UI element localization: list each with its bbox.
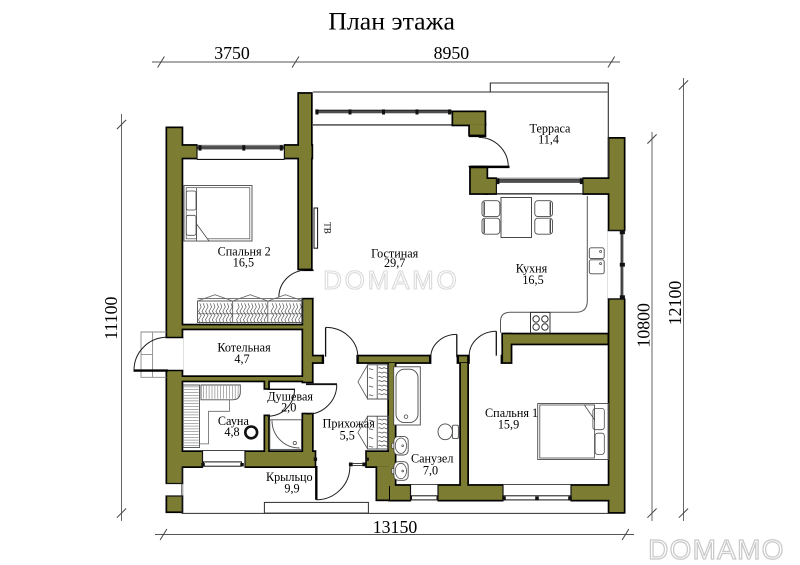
svg-text:15,9: 15,9 [498,418,519,432]
svg-text:9,9: 9,9 [284,482,299,496]
svg-text:ТВ: ТВ [323,222,333,234]
svg-text:2,0: 2,0 [281,400,296,414]
svg-text:10800: 10800 [634,303,654,348]
svg-text:4,8: 4,8 [224,425,239,439]
svg-text:8950: 8950 [434,43,470,63]
svg-text:29,7: 29,7 [384,256,405,270]
svg-text:7,0: 7,0 [423,463,438,477]
svg-text:3750: 3750 [214,43,250,63]
svg-text:DOMAMO: DOMAMO [648,534,785,565]
svg-text:16,5: 16,5 [522,273,543,287]
svg-text:5,5: 5,5 [340,428,355,442]
svg-text:13150: 13150 [373,517,418,537]
svg-text:16,5: 16,5 [233,256,254,270]
svg-text:12100: 12100 [665,281,685,326]
svg-text:11,4: 11,4 [538,132,559,146]
svg-text:4,7: 4,7 [234,352,249,366]
svg-text:План этажа: План этажа [328,6,455,35]
svg-text:11100: 11100 [101,297,121,340]
